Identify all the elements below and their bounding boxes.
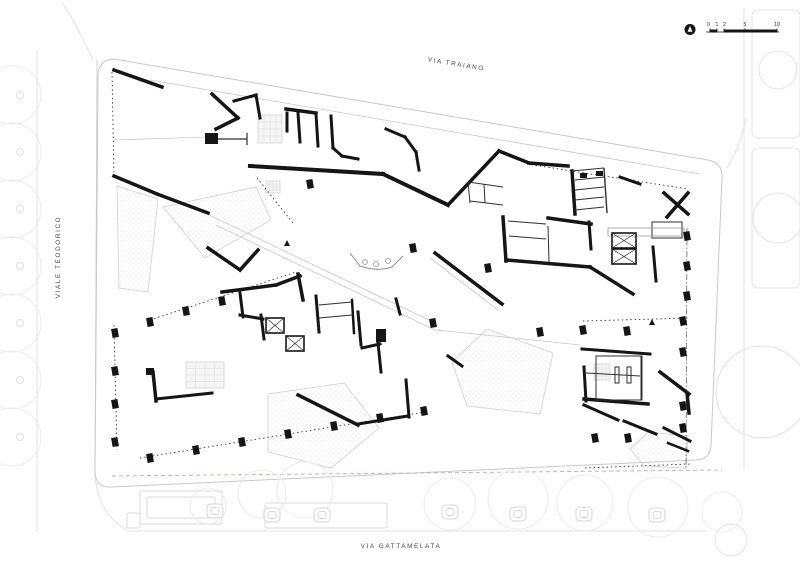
- site-plan-page: 0 1 2 5 10 VIA TRAIANO VIALE TEODORICO V…: [0, 0, 800, 566]
- building-walls: [114, 70, 690, 451]
- street-label-left: VIALE TEODORICO: [55, 216, 62, 298]
- street-label-top: VIA TRAIANO: [427, 56, 485, 72]
- grid-dotted-lines: [112, 72, 690, 470]
- street-label-bottom: VIA GATTAMELATA: [361, 543, 442, 550]
- scale-tick-0: 0: [707, 22, 710, 28]
- scale-tick-10: 10: [774, 22, 780, 28]
- paving-lines: [95, 60, 700, 470]
- scale-bar: 0 1 2 5 10: [685, 22, 780, 35]
- scale-tick-5: 5: [744, 22, 747, 28]
- scale-tick-1: 1: [716, 22, 719, 28]
- floor-plan-drawing: 0 1 2 5 10 VIA TRAIANO VIALE TEODORICO V…: [0, 0, 800, 566]
- scale-tick-2: 2: [723, 22, 726, 28]
